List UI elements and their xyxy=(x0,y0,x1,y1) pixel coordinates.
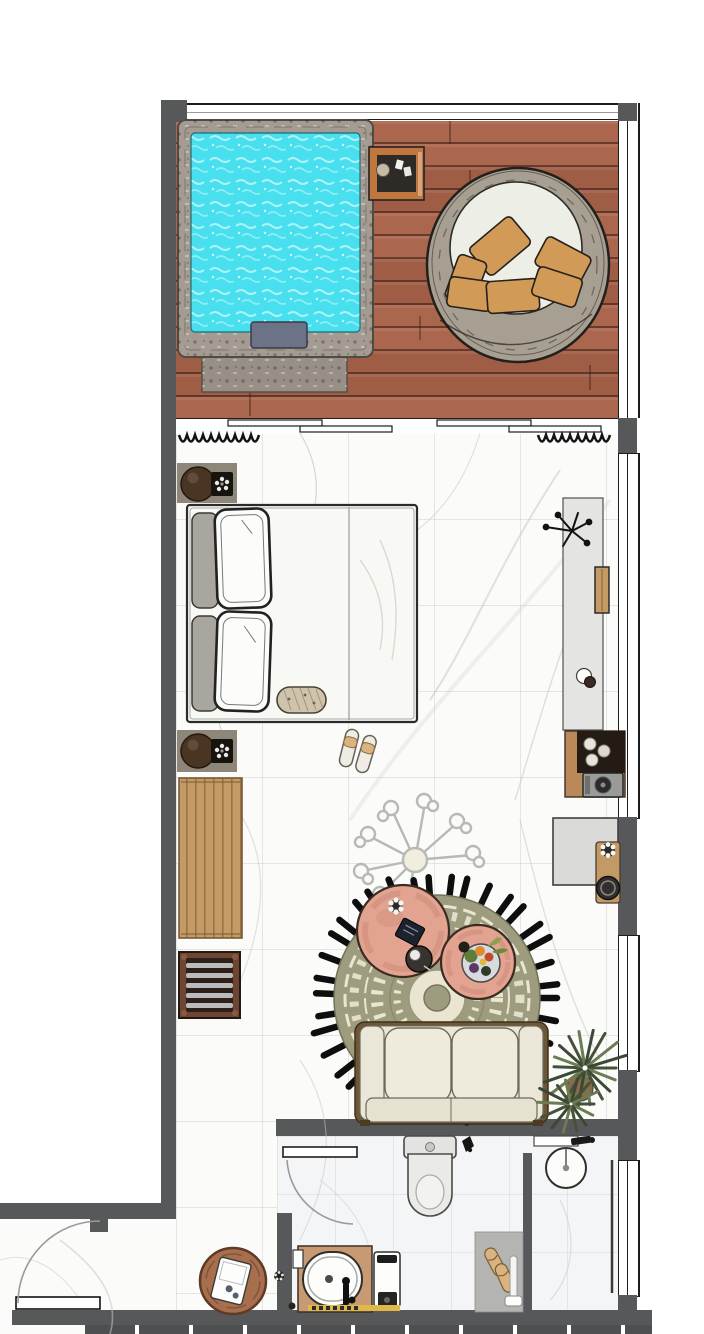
bedroom-window xyxy=(618,453,640,819)
floor-plan xyxy=(0,0,704,1334)
wall-right-mid xyxy=(618,817,637,935)
pool-deck-floor xyxy=(176,121,618,418)
wall-right-low xyxy=(618,1070,637,1160)
bathroom-floor xyxy=(277,1136,637,1310)
deck-railing-top xyxy=(187,103,637,121)
bathroom-window xyxy=(618,1160,640,1297)
wall-topright-stub xyxy=(618,103,637,121)
wall-topleft-stub xyxy=(161,100,187,122)
wall-bottom xyxy=(12,1310,652,1325)
wall-left xyxy=(161,100,176,1203)
entry-door-jamb xyxy=(90,1219,108,1232)
bathroom-partition-wall xyxy=(523,1153,532,1310)
wall-bathroom-top xyxy=(276,1119,637,1136)
exterior-paving-strip xyxy=(85,1325,652,1334)
living-window xyxy=(618,935,640,1072)
sliding-glass-door[interactable] xyxy=(176,418,618,434)
deck-railing-right xyxy=(618,103,640,418)
wall-right-deck-joint xyxy=(618,418,637,453)
wall-entry xyxy=(0,1203,176,1219)
wall-bathroom-left xyxy=(277,1213,292,1310)
